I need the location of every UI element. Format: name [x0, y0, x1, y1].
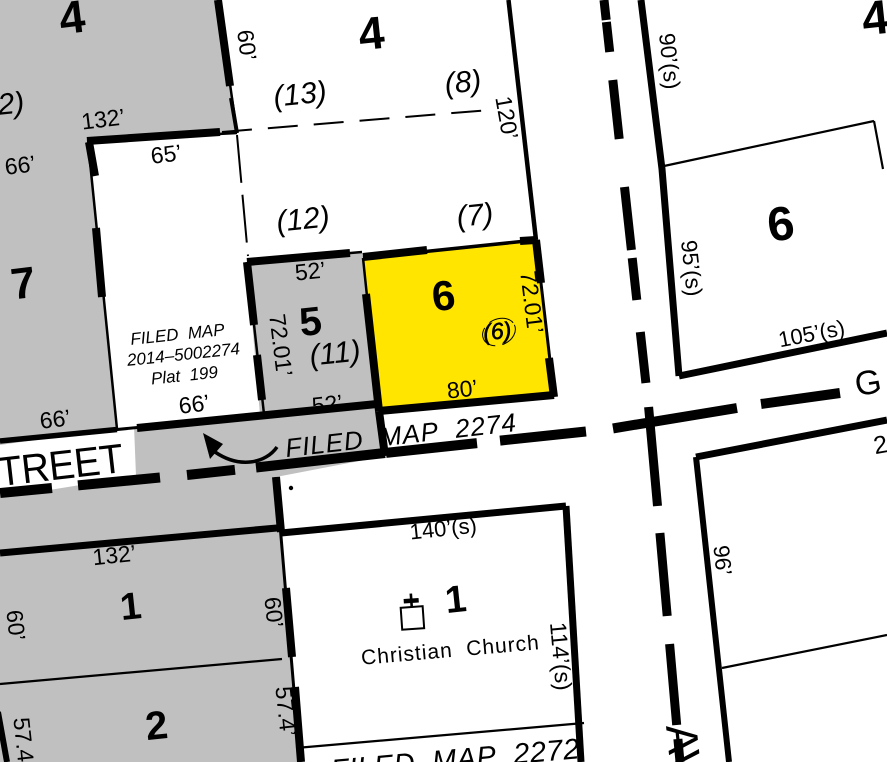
svg-text:80’: 80’	[446, 375, 479, 404]
svg-text:(11): (11)	[308, 334, 362, 372]
svg-text:52’: 52’	[294, 257, 327, 286]
svg-text:132’: 132’	[80, 104, 126, 135]
svg-text:(12): (12)	[275, 200, 332, 238]
svg-text:60’: 60’	[232, 28, 262, 62]
svg-text:57.4’: 57.4’	[8, 716, 39, 762]
svg-text:66’: 66’	[177, 389, 211, 419]
svg-text:(7): (7)	[455, 197, 495, 234]
svg-text:52’: 52’	[311, 390, 344, 419]
svg-text:60’: 60’	[259, 596, 288, 629]
svg-text:6: 6	[429, 271, 457, 320]
svg-text:2: 2	[143, 703, 170, 749]
svg-text:66’: 66’	[38, 404, 72, 434]
svg-text:60’: 60’	[1, 609, 30, 642]
svg-text:(6): (6)	[482, 317, 513, 346]
svg-text:66’: 66’	[3, 150, 37, 180]
svg-text:4: 4	[859, 0, 887, 46]
svg-text:AV: AV	[656, 722, 711, 762]
svg-text:1: 1	[443, 578, 468, 622]
svg-text:(13): (13)	[272, 75, 329, 113]
svg-text:65’: 65’	[149, 139, 183, 169]
svg-text:(2): (2)	[0, 86, 26, 123]
svg-text:57.4’: 57.4’	[270, 685, 301, 737]
svg-text:4: 4	[56, 0, 88, 44]
svg-text:1: 1	[118, 585, 143, 629]
svg-text:96’: 96’	[708, 544, 736, 576]
svg-text:132’: 132’	[91, 540, 137, 570]
svg-text:(8): (8)	[443, 64, 483, 101]
